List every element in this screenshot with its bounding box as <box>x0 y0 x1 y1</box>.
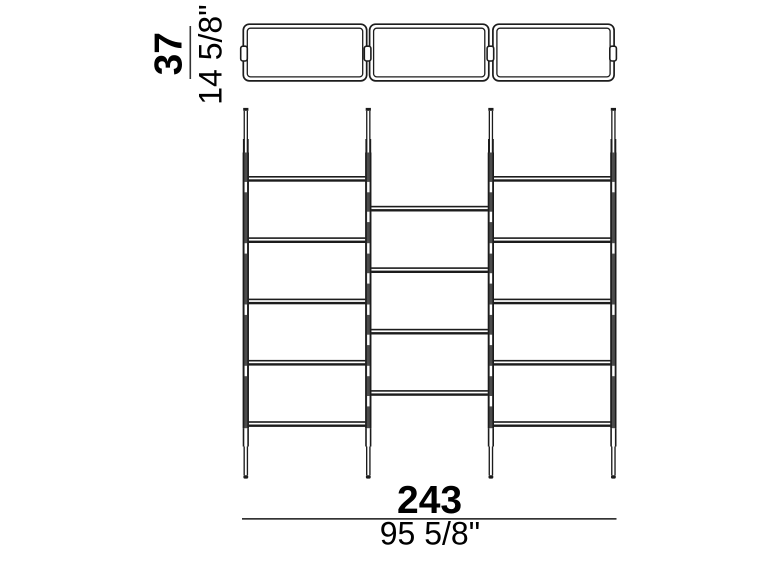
svg-text:95 5/8": 95 5/8" <box>380 516 480 552</box>
svg-text:37: 37 <box>148 32 191 75</box>
svg-text:14 5/8": 14 5/8" <box>193 4 229 104</box>
